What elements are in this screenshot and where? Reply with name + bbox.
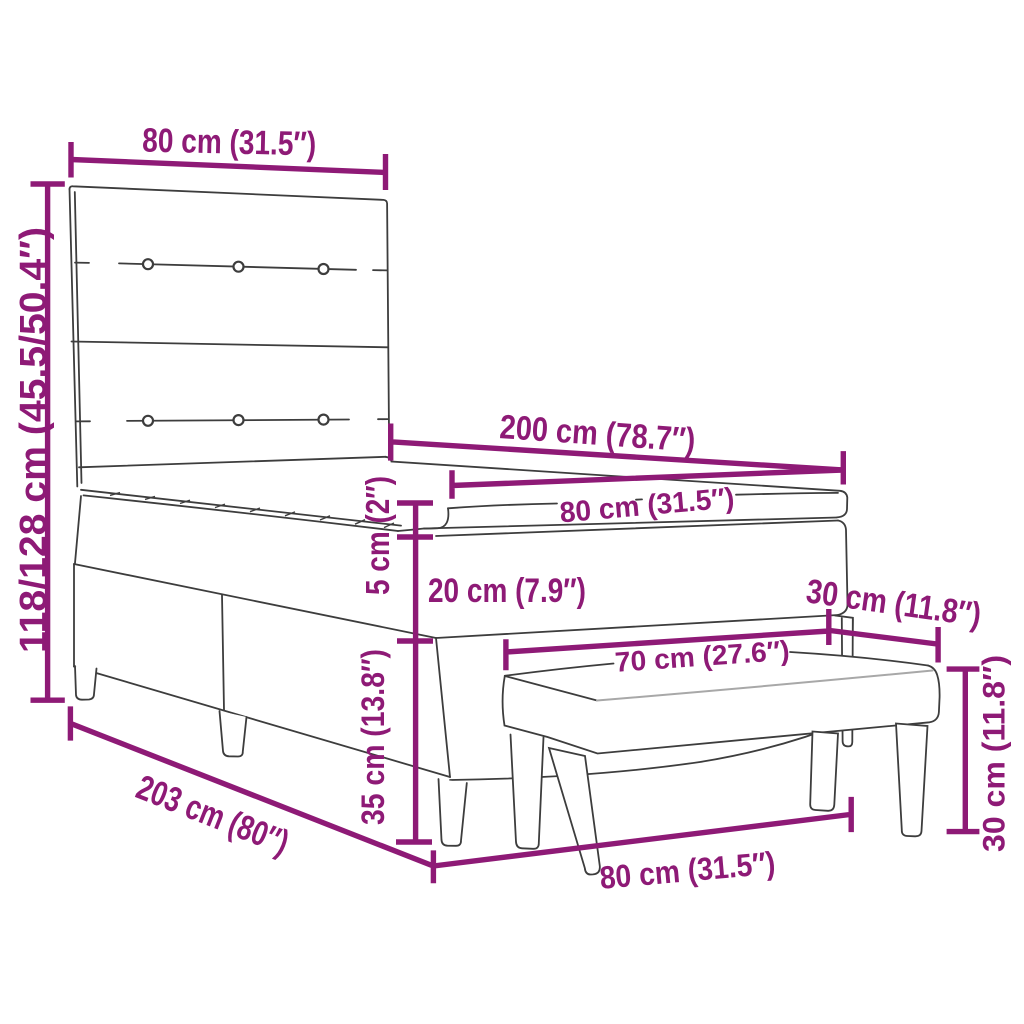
svg-text:20 cm (7.9″): 20 cm (7.9″) [428, 572, 586, 610]
svg-text:5 cm (2″): 5 cm (2″) [359, 476, 396, 595]
svg-text:80 cm (31.5″): 80 cm (31.5″) [142, 122, 317, 164]
svg-text:35 cm (13.8″): 35 cm (13.8″) [355, 649, 391, 825]
svg-text:118/128 cm (45.5/50.4″): 118/128 cm (45.5/50.4″) [13, 227, 55, 653]
svg-text:30 cm (11.8″): 30 cm (11.8″) [976, 655, 1012, 852]
